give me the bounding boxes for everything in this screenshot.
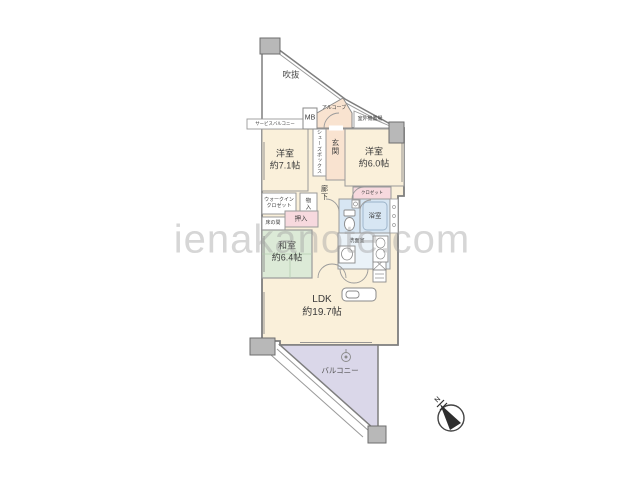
walk-in-closet-label: ウォークイン クロゼット (264, 197, 294, 210)
service-balcony-label: サービスバルコニー (255, 121, 295, 127)
outdoor-unit-label: 室外機置場 (358, 116, 383, 122)
entrance-label: 玄関 (330, 139, 340, 156)
laundry-icon (373, 236, 388, 262)
balcony-area (280, 345, 378, 428)
entrance-door-gap (329, 126, 343, 131)
ldk-size: 約19.7帖 (302, 306, 341, 319)
washbasin-icon (339, 246, 355, 263)
western-room-2-size: 約6.0帖 (359, 158, 390, 170)
oshiire-label: 押入 (295, 215, 308, 223)
storage-label: 物入 (304, 198, 311, 211)
japanese-room-size: 約6.4帖 (272, 252, 303, 264)
closet-label: クロゼット (361, 190, 383, 196)
shoe-box-label: シューズボックス (316, 130, 322, 175)
bathroom-label: 浴室 (369, 212, 382, 220)
side-storage-strip (390, 199, 398, 233)
hallway-label: 廊下 (319, 185, 328, 201)
alcove-label: アルコーブ (322, 105, 346, 111)
alcove-area (317, 98, 352, 128)
compass-icon (437, 400, 464, 431)
western-room-1-label: 洋室 約7.1帖 (270, 148, 301, 171)
western-room-1-size: 約7.1帖 (270, 160, 301, 172)
hand-sink-icon (352, 200, 359, 208)
toilet-icon (344, 210, 355, 231)
ldk-name: LDK (302, 293, 341, 306)
balcony-label: バルコニー (321, 366, 358, 376)
floor-plan-drawing (0, 0, 640, 480)
western-room-1-name: 洋室 (270, 148, 301, 160)
ldk-label: LDK 約19.7帖 (302, 293, 341, 319)
western-room-2-label: 洋室 約6.0帖 (359, 146, 390, 169)
washroom-label: 洗面室 (350, 238, 365, 244)
void-label: 吹抜 (282, 69, 299, 80)
japanese-room-label: 和室 約6.4帖 (272, 240, 303, 263)
meter-box-label: MB (305, 113, 316, 122)
tokonoma-label: 床の間 (266, 220, 281, 226)
walk-in-closet-line2: クロゼット (264, 203, 294, 209)
western-room-2-name: 洋室 (359, 146, 390, 158)
floor-plan-canvas: 吹抜 サービスバルコニー MB アルコーブ 室外機置場 シューズボックス 玄関 … (0, 0, 640, 480)
japanese-room-name: 和室 (272, 240, 303, 252)
